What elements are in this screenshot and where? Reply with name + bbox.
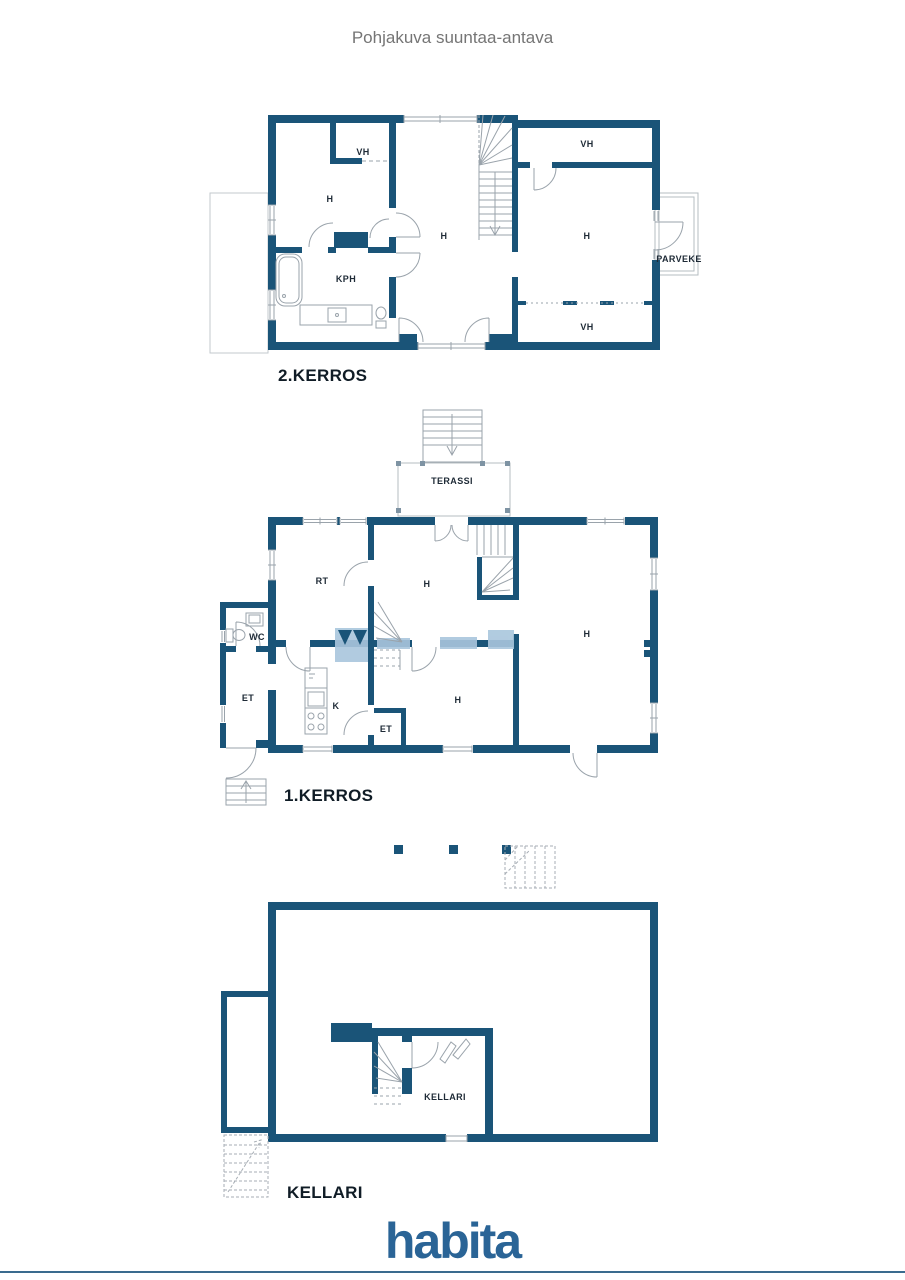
entrance-stairs-top (423, 410, 482, 462)
room-label-h-left: H (327, 194, 334, 204)
floor2-partition-dashes (362, 161, 644, 303)
room-label-h-right-f1: H (584, 629, 591, 639)
floor2-outside-structures (210, 193, 268, 353)
habita-logo: habita (0, 1212, 905, 1270)
basement-plan-drawing (200, 840, 700, 1240)
floor2-plan-drawing (200, 100, 700, 400)
room-label-h-bottom: H (455, 695, 462, 705)
basement-dashed-stairs-top (505, 846, 555, 888)
room-label-rt: RT (316, 576, 329, 586)
floor-label-1kerros: 1.KERROS (284, 786, 373, 806)
room-label-kellari: KELLARI (424, 1092, 466, 1102)
basement-door-threshold (446, 1135, 467, 1142)
floor1-doors (226, 525, 597, 778)
room-label-kph: KPH (336, 274, 356, 284)
kitchen-fixtures (305, 668, 327, 734)
room-label-h-center: H (424, 579, 431, 589)
basement-dashed-stairs-left (224, 1135, 268, 1197)
floor1-walls (220, 517, 658, 753)
room-label-vh-top-left: VH (356, 147, 369, 157)
floor2-staircase (479, 115, 512, 240)
room-label-vh-bottom-right: VH (580, 322, 593, 332)
floor1-windows (222, 518, 658, 753)
page-title: Pohjakuva suuntaa-antava (0, 28, 905, 48)
room-label-parveke: PARVEKE (656, 254, 701, 264)
basement-doors (412, 1039, 470, 1068)
floorplan-page: Pohjakuva suuntaa-antava (0, 0, 905, 1280)
floor2-walls (268, 115, 660, 350)
basement-winder-stairs (374, 1042, 402, 1104)
basement-walls (221, 902, 658, 1142)
room-label-wc: WC (249, 632, 265, 642)
floor2-doors (309, 168, 683, 342)
floor2-windows (268, 115, 658, 350)
floor1-staircase-up (477, 525, 513, 592)
room-label-h-hall: H (441, 231, 448, 241)
basement-pillars (394, 845, 511, 854)
room-label-h-right-f2: H (584, 231, 591, 241)
room-label-kitchen: K (333, 701, 340, 711)
floor1-plan-drawing (200, 400, 700, 820)
floor2-kph-fixtures (276, 254, 386, 328)
room-label-et-left: ET (242, 693, 254, 703)
room-label-vh-top-right: VH (580, 139, 593, 149)
terassi-posts (396, 461, 510, 513)
room-label-et-small: ET (380, 724, 392, 734)
floor1-staircase-down (374, 602, 402, 670)
terassi-outline (398, 463, 510, 516)
footer-baseline (0, 1271, 905, 1273)
floor-label-2kerros: 2.KERROS (278, 366, 367, 386)
room-label-terassi: TERASSI (431, 476, 473, 486)
exterior-steps-bottom-left (226, 779, 266, 805)
floor-label-kellari: KELLARI (287, 1183, 363, 1203)
